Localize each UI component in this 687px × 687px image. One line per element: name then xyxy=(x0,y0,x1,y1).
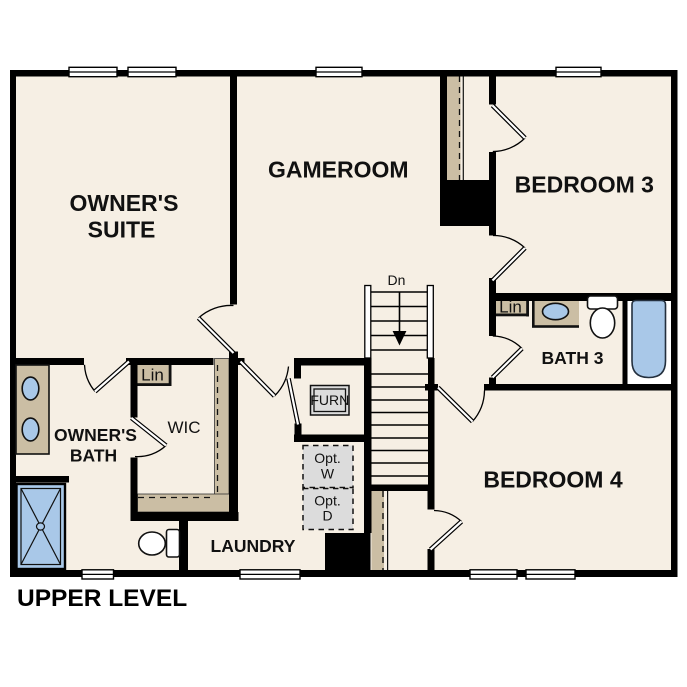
svg-text:Lin: Lin xyxy=(141,366,164,385)
svg-text:OWNER'S: OWNER'S xyxy=(54,425,137,445)
svg-text:D: D xyxy=(322,508,332,524)
svg-text:UPPER LEVEL: UPPER LEVEL xyxy=(17,585,187,612)
svg-text:Lin: Lin xyxy=(499,298,522,317)
svg-text:GAMEROOM: GAMEROOM xyxy=(268,157,409,183)
svg-text:BATH: BATH xyxy=(70,446,117,466)
svg-text:SUITE: SUITE xyxy=(88,217,156,243)
svg-text:Opt.: Opt. xyxy=(314,493,340,509)
svg-text:Dn: Dn xyxy=(388,272,406,288)
svg-text:Opt.: Opt. xyxy=(314,450,340,466)
svg-text:LAUNDRY: LAUNDRY xyxy=(211,536,296,556)
svg-text:OWNER'S: OWNER'S xyxy=(70,190,179,216)
svg-text:WIC: WIC xyxy=(167,418,200,437)
svg-text:FURN: FURN xyxy=(310,392,349,408)
svg-text:W: W xyxy=(321,466,335,482)
svg-text:BATH 3: BATH 3 xyxy=(542,348,604,368)
svg-text:BEDROOM 4: BEDROOM 4 xyxy=(483,467,623,493)
svg-text:BEDROOM 3: BEDROOM 3 xyxy=(515,172,654,198)
